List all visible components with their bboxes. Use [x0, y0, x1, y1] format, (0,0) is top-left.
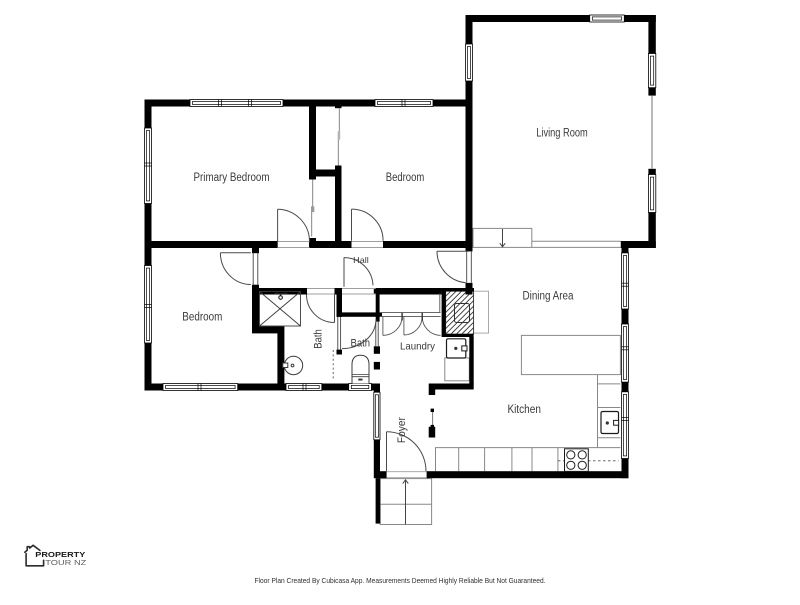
svg-text:Bath: Bath — [312, 329, 324, 349]
svg-text:Bedroom: Bedroom — [182, 312, 222, 324]
svg-text:TOUR NZ: TOUR NZ — [45, 558, 86, 567]
svg-text:Kitchen: Kitchen — [507, 404, 541, 416]
svg-text:Floor Plan Created By Cubicasa: Floor Plan Created By Cubicasa App. Meas… — [255, 576, 546, 585]
svg-text:Living Room: Living Room — [536, 127, 588, 139]
svg-text:Bedroom: Bedroom — [386, 172, 425, 184]
svg-text:Primary Bedroom: Primary Bedroom — [194, 172, 270, 184]
svg-text:Hall: Hall — [353, 256, 369, 265]
svg-text:Laundry: Laundry — [400, 341, 436, 353]
svg-text:Foyer: Foyer — [396, 417, 408, 443]
svg-text:Bath: Bath — [351, 337, 371, 349]
svg-text:Dining Area: Dining Area — [523, 290, 575, 302]
